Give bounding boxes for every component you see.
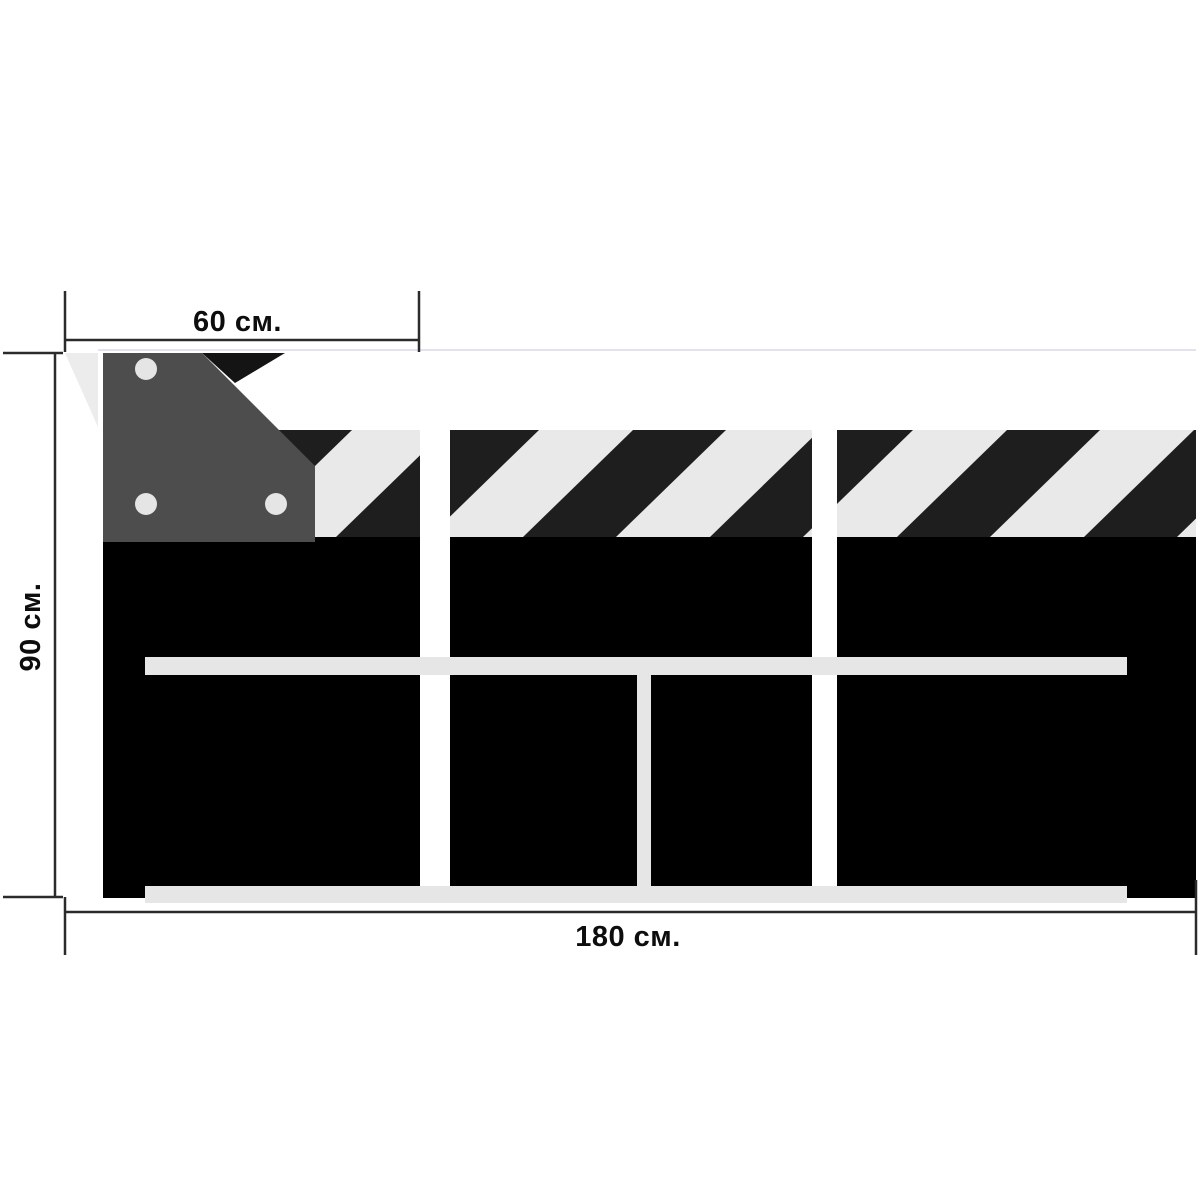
top-rail — [145, 657, 1127, 675]
dimension-label-top-width: 60 см. — [150, 305, 325, 339]
bolt-hole — [135, 493, 157, 515]
bolt-hole — [135, 358, 157, 380]
barrier-drawing — [0, 0, 1200, 1200]
panel-gap-left — [420, 352, 450, 898]
clapper-wedge-light — [65, 353, 98, 427]
bottom-rail — [145, 886, 1127, 903]
panel-top-hairline — [98, 349, 1196, 351]
bolt-hole — [265, 493, 287, 515]
technical-drawing-canvas: 60 см. 90 см. 180 см. — [0, 0, 1200, 1200]
center-divider — [637, 675, 651, 886]
dimension-label-bottom-width: 180 см. — [528, 920, 728, 954]
panel-gap-right — [812, 352, 837, 898]
dimension-label-left-height: 90 см. — [14, 547, 48, 707]
corner-bracket — [103, 353, 315, 542]
